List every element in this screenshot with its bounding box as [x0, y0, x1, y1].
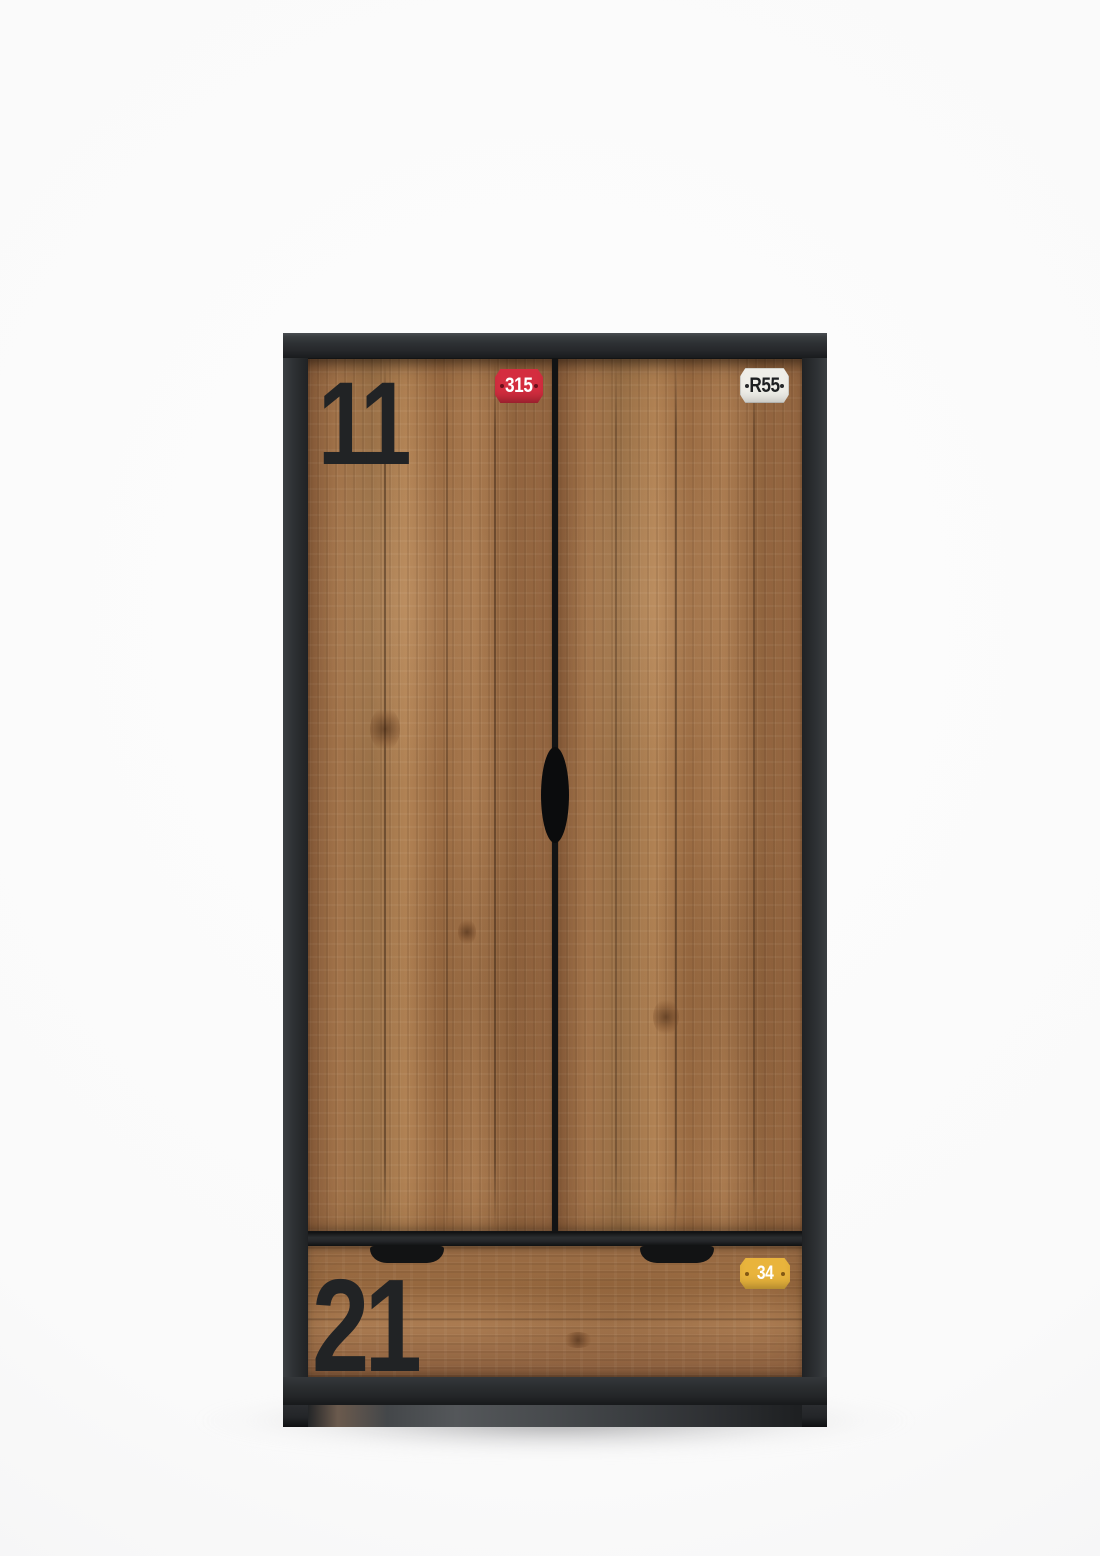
- leg-left: [283, 1405, 308, 1427]
- wood-knot: [370, 707, 400, 751]
- wardrobe-top-panel: [283, 333, 827, 358]
- drawer-badge-yellow: 34: [740, 1258, 790, 1289]
- door-badge-red: 315: [495, 369, 543, 403]
- wardrobe-frame-left: [283, 358, 308, 1405]
- badge-white-label: R55: [749, 374, 779, 398]
- plank-seam: [494, 359, 496, 1231]
- bottom-rail: [283, 1377, 827, 1405]
- plank-seam: [615, 359, 617, 1231]
- badge-yellow-label: 34: [757, 1263, 774, 1285]
- door-stencil-number: 11: [318, 380, 408, 470]
- wood-knot: [458, 919, 476, 945]
- plank-seam: [446, 359, 448, 1231]
- wardrobe-frame-right: [802, 358, 827, 1405]
- plank-seam: [675, 359, 677, 1231]
- right-door: R55: [557, 359, 802, 1231]
- studio-background: 11 315 R55 21: [0, 0, 1100, 1556]
- door-section: 11 315 R55: [308, 358, 802, 1232]
- door-badge-white: R55: [740, 368, 789, 403]
- doors-drawer-divider: [308, 1232, 802, 1246]
- leg-right: [802, 1405, 827, 1427]
- wood-knot: [653, 999, 679, 1035]
- drawer-scoop-right: [640, 1246, 714, 1263]
- under-cabinet-shadow: [308, 1405, 802, 1427]
- drawer-stencil-number: 21: [312, 1276, 417, 1376]
- door-handle-cutout: [541, 747, 569, 843]
- wardrobe: 11 315 R55 21: [283, 333, 827, 1428]
- plank-seam: [753, 359, 755, 1231]
- drawer: 21 34: [308, 1246, 802, 1377]
- left-door: 11 315: [308, 359, 553, 1231]
- wood-knot: [563, 1332, 593, 1348]
- badge-red-label: 315: [505, 374, 533, 398]
